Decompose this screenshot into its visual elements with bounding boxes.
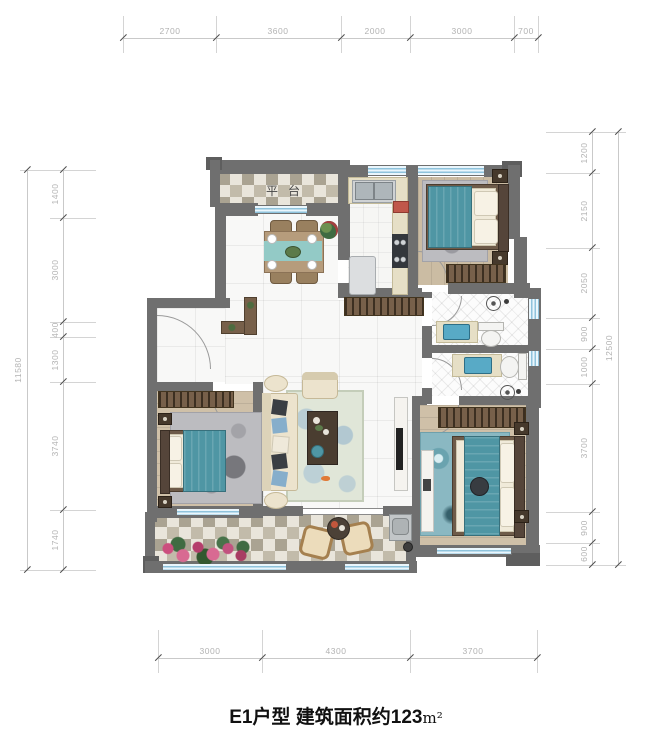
headboard: [160, 430, 170, 494]
sideboard: [344, 297, 424, 316]
wall: [422, 326, 432, 358]
wardrobe: [438, 407, 526, 428]
window: [344, 563, 410, 571]
entry-console: [221, 321, 245, 334]
floor-drain: [403, 542, 413, 552]
sofa-back: [262, 393, 271, 491]
sliding-door: [303, 508, 383, 515]
entry-console: [244, 297, 257, 335]
dim-label: 2000: [365, 26, 386, 36]
extension-line: [546, 565, 626, 566]
kitchen-appliance: [393, 201, 409, 213]
dim-total-label: 11580: [13, 357, 23, 383]
dim-label: 3700: [463, 646, 484, 656]
extension-line: [50, 510, 96, 511]
sink-basin: [374, 182, 393, 200]
plate: [307, 260, 317, 270]
plate: [267, 260, 277, 270]
extension-line: [20, 170, 96, 171]
dim-label: 900: [579, 326, 589, 342]
table-item: [339, 525, 345, 531]
coffee-table: [307, 411, 338, 465]
room-label-platform: 平台: [245, 182, 321, 199]
dim-label: 4300: [326, 646, 347, 656]
floor-plan-sheet: 2700 3600 2000 3000 700 3000 4300 3700 1…: [0, 0, 672, 747]
extension-line: [537, 630, 538, 673]
flower-bed: [153, 536, 253, 564]
dim-label: 1740: [50, 530, 60, 551]
pillow: [500, 443, 515, 483]
table-item: [331, 521, 338, 528]
drain-symbol: [516, 389, 521, 394]
dim-label: 1000: [579, 357, 589, 378]
extension-line: [262, 630, 263, 673]
plate: [307, 234, 317, 244]
sofa-pillow: [271, 470, 288, 487]
window: [528, 298, 540, 320]
dimension-line: [158, 658, 537, 659]
dim-total-label: 12500: [604, 335, 614, 361]
dim-label: 1300: [50, 350, 60, 371]
nightstand: [492, 169, 508, 183]
table-decor: [315, 425, 323, 431]
dimension-line: [27, 170, 28, 570]
dimension-line: [618, 132, 619, 565]
extension-line: [50, 382, 96, 383]
window: [162, 563, 287, 571]
headboard: [498, 184, 509, 252]
sofa-pillow: [271, 417, 287, 433]
refrigerator: [349, 256, 376, 295]
title-text: E1户型 建筑面积约123: [229, 707, 422, 728]
wall: [432, 345, 528, 353]
dim-label: 600: [579, 546, 589, 562]
bathroom2-sink: [464, 357, 492, 374]
ac-unit-fan: [392, 518, 409, 535]
wall: [448, 283, 530, 294]
shower-symbol: [486, 296, 501, 311]
wall: [306, 203, 340, 216]
dim-label: 1200: [579, 143, 589, 164]
dim-label: 2700: [160, 26, 181, 36]
dim-label: 3000: [50, 260, 60, 281]
dim-label: 1400: [50, 184, 60, 205]
nightstand: [158, 413, 172, 425]
toilet-tank: [518, 353, 527, 380]
wardrobe: [446, 264, 506, 283]
nightstand: [492, 251, 508, 265]
side-table: [264, 375, 288, 392]
wall: [459, 396, 530, 405]
dresser-item: [423, 479, 431, 491]
title-unit: m²: [422, 709, 442, 727]
dimension-line: [123, 38, 538, 39]
window: [176, 508, 240, 516]
toilet-bowl: [481, 330, 501, 347]
dim-label: 2150: [579, 201, 589, 222]
dim-label: 3000: [200, 646, 221, 656]
extension-line: [546, 132, 626, 133]
side-table: [264, 492, 288, 509]
sofa-pillow: [271, 453, 288, 470]
wall: [348, 165, 368, 177]
centerpiece: [285, 246, 301, 258]
wardrobe: [158, 391, 234, 408]
table-decor: [313, 417, 320, 424]
dim-label: 3600: [268, 26, 289, 36]
wall: [215, 205, 226, 305]
blanket: [428, 186, 472, 248]
sofa-pillow: [271, 435, 289, 453]
pillow: [474, 191, 498, 216]
stove: [392, 234, 408, 268]
koi-decor: [321, 476, 330, 481]
pillow: [168, 463, 182, 488]
tv: [396, 428, 403, 470]
wall: [210, 160, 340, 174]
wall: [147, 306, 157, 386]
table-decor: [311, 445, 324, 458]
dim-label: 3700: [579, 438, 589, 459]
nightstand: [158, 496, 172, 508]
dim-label: 3740: [50, 436, 60, 457]
blanket: [183, 430, 226, 492]
table-decor: [323, 429, 329, 435]
dim-label: 900: [579, 520, 589, 536]
wall: [147, 298, 230, 308]
window: [436, 547, 512, 555]
toilet-bowl: [500, 356, 519, 378]
armchair-back: [302, 372, 338, 380]
dim-label: 3000: [452, 26, 473, 36]
page-title: E1户型 建筑面积约123m²: [0, 702, 672, 729]
pillow: [500, 487, 515, 527]
window: [528, 350, 540, 367]
shower-symbol: [500, 385, 515, 400]
window: [367, 165, 407, 176]
nightstand: [514, 510, 529, 523]
bathroom1-sink: [443, 324, 470, 340]
window: [254, 205, 308, 214]
plate: [267, 234, 277, 244]
wall: [508, 165, 520, 239]
dresser: [421, 450, 434, 532]
extension-line: [410, 630, 411, 673]
sink-basin: [355, 182, 374, 200]
dim-label: 400: [50, 322, 60, 338]
pillow: [474, 219, 498, 244]
wall: [408, 165, 418, 294]
extension-line: [20, 570, 96, 571]
drain-symbol: [504, 299, 509, 304]
window: [417, 165, 485, 176]
nightstand: [514, 422, 529, 435]
bed-decor: [470, 477, 489, 496]
sofa-pillow: [271, 399, 288, 416]
pillow: [168, 436, 182, 461]
dim-label: 2050: [579, 273, 589, 294]
wall: [147, 382, 157, 522]
potted-plant: [320, 221, 338, 239]
extension-line: [50, 218, 96, 219]
extension-line: [158, 630, 159, 673]
dim-label: 700: [518, 26, 534, 36]
wall: [210, 160, 220, 207]
